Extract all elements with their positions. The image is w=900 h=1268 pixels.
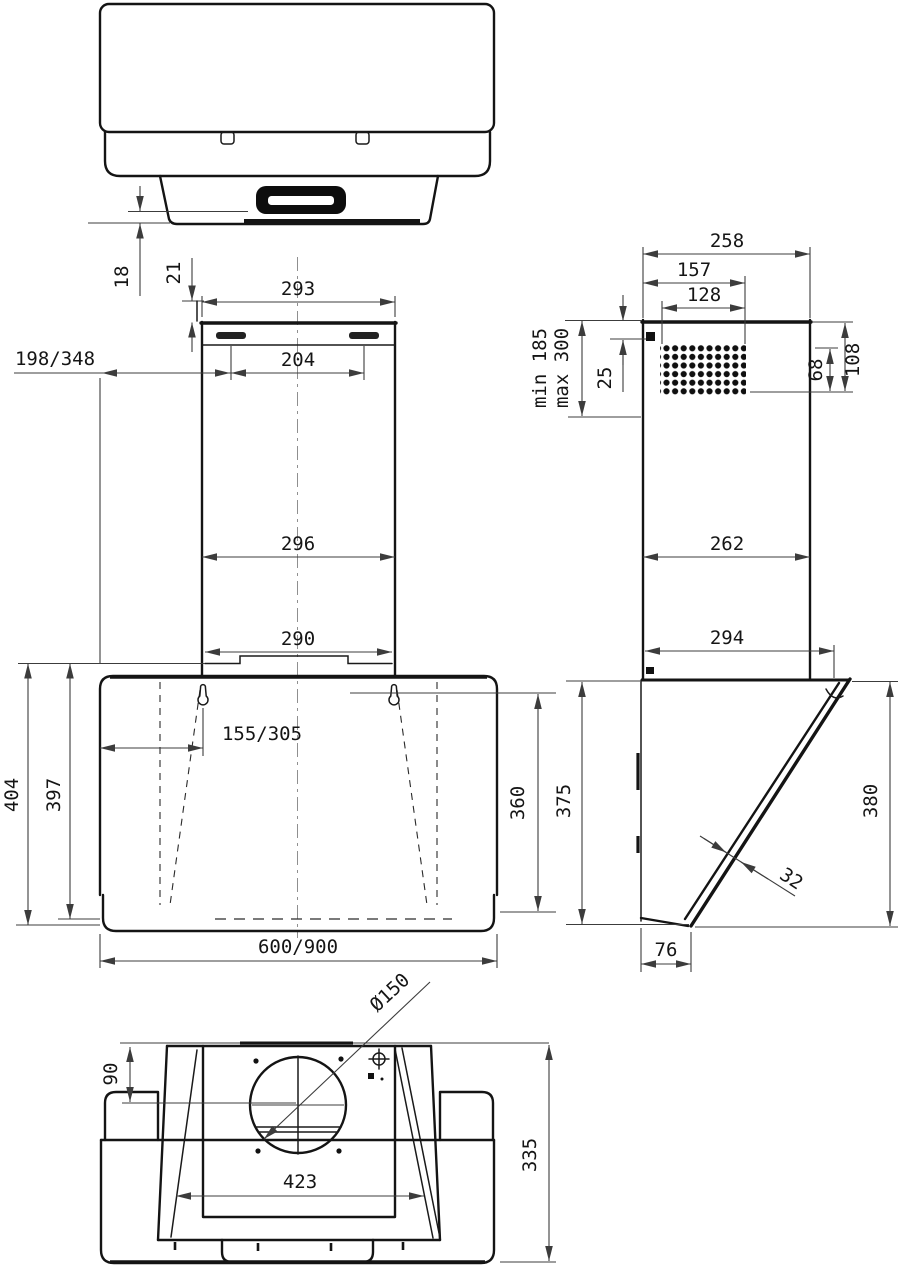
dim-label-296: 296 xyxy=(281,533,315,555)
dim-label-198-348: 198/348 xyxy=(15,348,95,370)
top-view xyxy=(100,4,494,224)
screw-dot xyxy=(338,1056,343,1061)
dim-label-290: 290 xyxy=(281,628,315,650)
dim-label-157: 157 xyxy=(677,259,711,281)
glass-wing-right xyxy=(440,1092,493,1140)
dim-label-335: 335 xyxy=(519,1138,541,1172)
side-view-dimensions: 258 157 128 min 185 max 300 25 68 108 26… xyxy=(529,230,898,972)
dim-label-max-300: max 300 xyxy=(551,328,573,408)
front-view-dimensions: 293 204 198/348 296 290 155/305 404 397 … xyxy=(1,278,556,968)
vent-cover xyxy=(222,1240,373,1262)
dim-label-68: 68 xyxy=(805,359,827,382)
dim-label-21: 21 xyxy=(163,262,185,285)
body-left-edge xyxy=(158,1046,167,1240)
glass-inner-face xyxy=(685,683,839,919)
clip-left xyxy=(221,132,234,144)
bottom-view xyxy=(101,1043,549,1263)
glass-wing-left xyxy=(105,1092,158,1140)
side-view xyxy=(638,320,850,926)
dim-label-375: 375 xyxy=(553,784,575,818)
dim-label-25: 25 xyxy=(594,367,616,390)
hidden-flare-right xyxy=(397,690,427,905)
mount-slot-left xyxy=(216,332,246,339)
glass-side-edge-right-1 xyxy=(395,1049,433,1238)
dim-label-294: 294 xyxy=(710,627,744,649)
dim-label-18: 18 xyxy=(111,266,133,289)
dim-label-404: 404 xyxy=(1,778,23,812)
keyhole-hanger-left xyxy=(198,685,208,705)
glass-outer-face xyxy=(691,679,850,926)
glass-band-outline xyxy=(103,895,494,931)
screw-upper xyxy=(646,332,655,341)
glass-side-edge-left xyxy=(171,1050,197,1237)
dim-label-min-185: min 185 xyxy=(529,328,551,408)
dim-label-128: 128 xyxy=(687,284,721,306)
dim-label-423: 423 xyxy=(283,1171,317,1193)
hood-top-body-outline xyxy=(100,4,494,132)
vent-slot-inner xyxy=(268,196,334,205)
dim-label-diameter-150: Ø150 xyxy=(366,969,414,1016)
clip-right xyxy=(356,132,369,144)
dim-label-108: 108 xyxy=(842,343,864,377)
drawing-canvas: 18 21 293 204 xyxy=(0,0,900,1268)
hidden-flare-left xyxy=(170,690,200,905)
mount-slot-right xyxy=(349,332,379,339)
screw-dot xyxy=(255,1148,260,1153)
technical-drawing: 18 21 293 204 xyxy=(0,0,900,1268)
screw-lower xyxy=(646,667,654,674)
keyhole-hanger-right xyxy=(389,685,399,705)
dim-label-90: 90 xyxy=(100,1063,122,1086)
hood-top-band xyxy=(105,132,490,176)
dim-label-76: 76 xyxy=(655,939,678,961)
dim-label-32: 32 xyxy=(776,864,807,895)
dim-label-262: 262 xyxy=(710,533,744,555)
dim-label-600-900: 600/900 xyxy=(258,936,338,958)
chimney-bottom-bracket xyxy=(205,656,392,664)
dim-label-258: 258 xyxy=(710,230,744,252)
dim-label-204: 204 xyxy=(281,349,315,371)
dim-label-380: 380 xyxy=(860,784,882,818)
screw-dot xyxy=(253,1058,258,1063)
vent-grille xyxy=(660,344,746,396)
dim-label-360: 360 xyxy=(507,786,529,820)
screw-dot xyxy=(336,1148,341,1153)
dim-label-155-305: 155/305 xyxy=(222,723,302,745)
mounting-screw-symbol xyxy=(368,1049,389,1081)
dim-label-293: 293 xyxy=(281,278,315,300)
body-right-edge xyxy=(431,1046,440,1240)
dim-label-397: 397 xyxy=(43,778,65,812)
